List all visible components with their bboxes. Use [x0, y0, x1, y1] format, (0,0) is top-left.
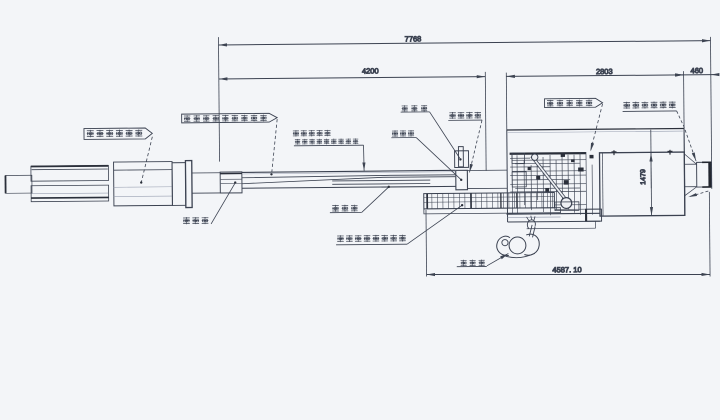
svg-text:1479: 1479	[640, 169, 647, 185]
svg-text:460: 460	[690, 66, 703, 75]
svg-text:4587. 10: 4587. 10	[552, 265, 581, 274]
svg-text:2803: 2803	[596, 67, 613, 76]
svg-text:7768: 7768	[405, 34, 422, 43]
svg-text:4200: 4200	[362, 66, 379, 75]
